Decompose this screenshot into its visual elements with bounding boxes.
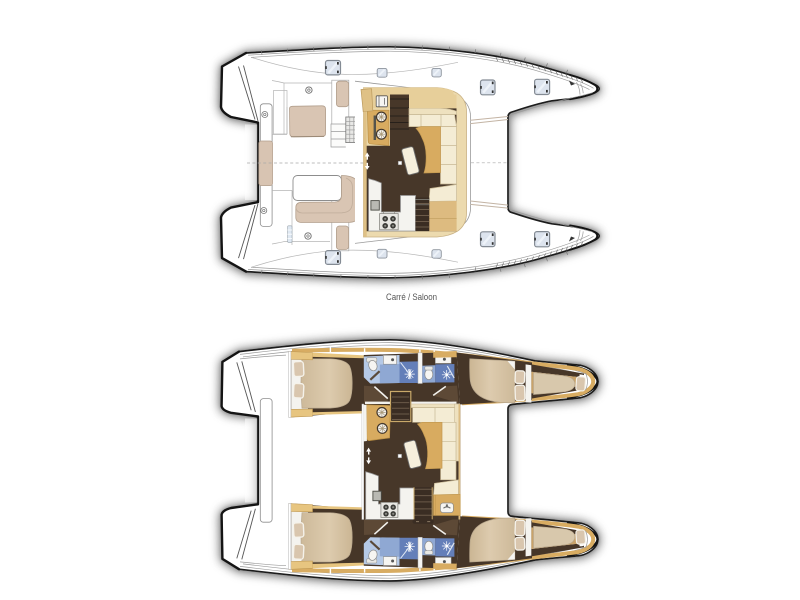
svg-text:Carré / Saloon: Carré / Saloon — [386, 292, 437, 302]
